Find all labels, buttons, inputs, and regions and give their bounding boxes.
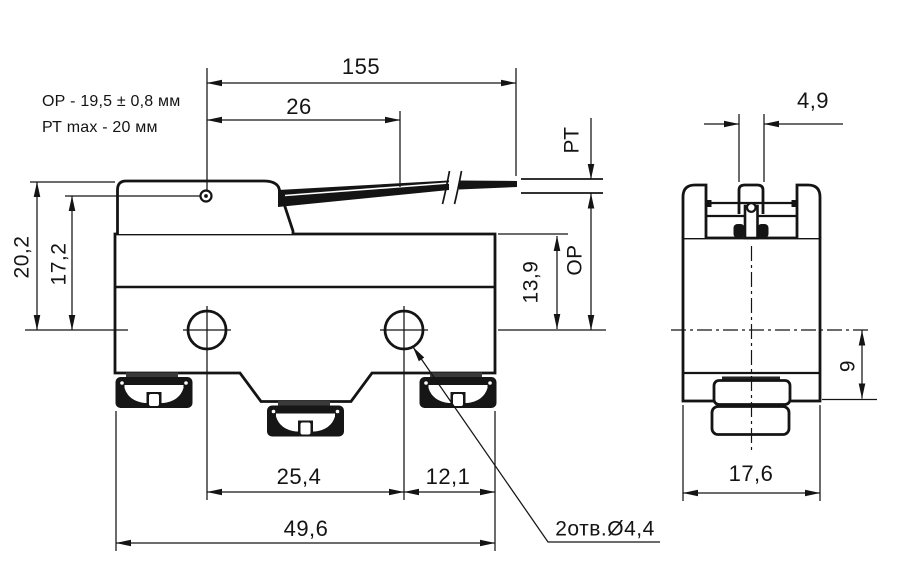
- side-ear-left: [683, 185, 706, 238]
- dim-top-to-hole-axis-label: 13,9: [521, 261, 542, 304]
- dim-pivot-height-label: 17,2: [49, 243, 70, 286]
- terminal-left-slot: [149, 394, 159, 406]
- side-stem-foot-left: [734, 224, 745, 238]
- side-terminal-lower: [712, 407, 789, 435]
- dim-hole-axis-to-bottom-label: 9: [838, 360, 859, 372]
- side-stem-foot-right: [758, 224, 769, 238]
- lever-arm: [278, 171, 517, 207]
- dim-hole-to-edge-label: 12,1: [426, 466, 471, 488]
- note-op-spec: ОР - 19,5 ± 0,8 мм: [42, 94, 180, 110]
- technical-drawing-microswitch: ОР - 19,5 ± 0,8 мм РТ max - 20 мм 155 26…: [0, 0, 900, 588]
- pivot-center-dot: [204, 194, 208, 198]
- side-view: [671, 185, 868, 450]
- lever-housing-cap: [118, 181, 294, 234]
- side-bar-end-right: [792, 200, 798, 207]
- dim-lever-total-label: 155: [342, 56, 380, 78]
- dim-body-depth-label: 17,6: [729, 463, 774, 485]
- dim-pivot-offset-label: 26: [286, 96, 311, 118]
- dim-hole-spacing-label: 25,4: [277, 466, 322, 488]
- dim-body-width-label: 49,6: [284, 518, 329, 540]
- side-ear-right: [797, 185, 820, 238]
- side-top-mechanism: [683, 185, 820, 238]
- label-pretravel: РТ: [562, 127, 583, 154]
- drawing-canvas: [0, 0, 900, 588]
- dim-height-total-label: 20,2: [12, 236, 33, 279]
- label-operating-pos: ОР: [565, 244, 586, 275]
- lever-arm-tip-section: [459, 181, 517, 190]
- terminal-right-slot: [453, 394, 463, 406]
- side-stem-roller: [747, 203, 756, 212]
- terminal-center-slot: [301, 423, 311, 435]
- dim-plunger-width-label: 4,9: [797, 90, 829, 112]
- note-pt-spec: РТ max - 20 мм: [42, 120, 158, 136]
- side-bar-end-left: [706, 200, 712, 207]
- front-view: [115, 171, 517, 437]
- note-holes-label: 2отв.Ø4,4: [555, 519, 655, 540]
